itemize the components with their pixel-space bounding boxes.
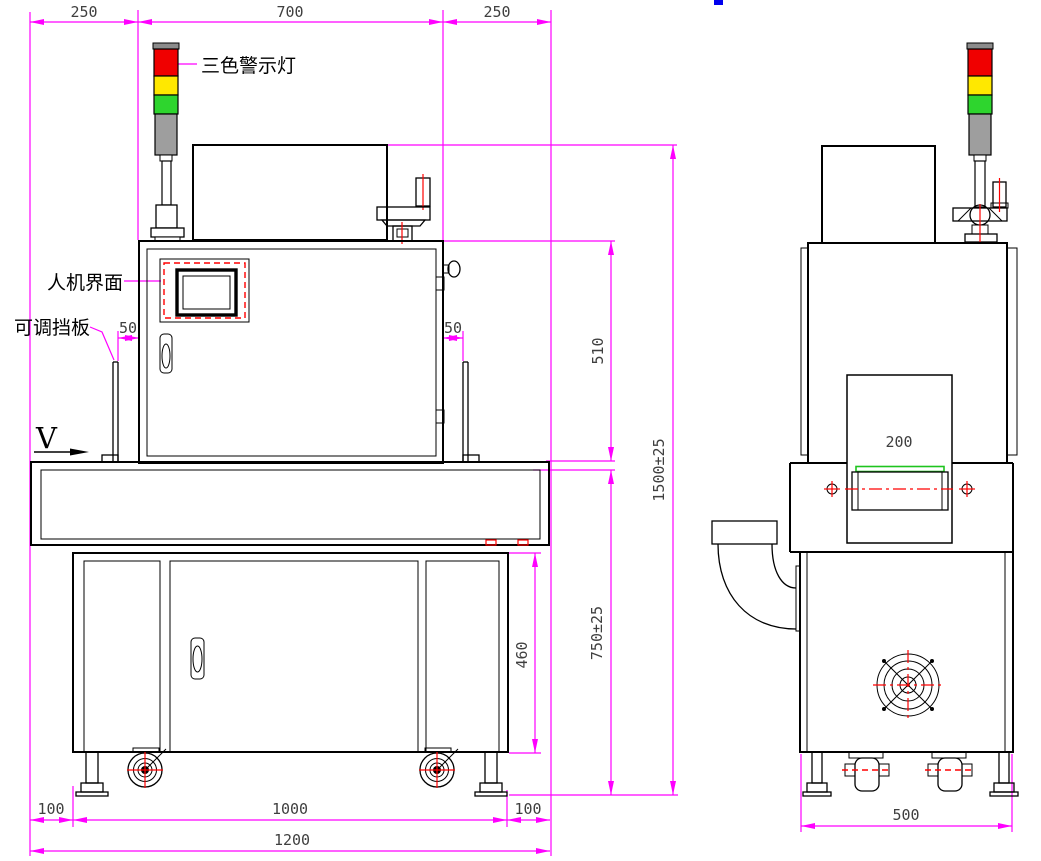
- adjustable-baffle-left: [102, 362, 118, 462]
- dim-total-depth: 500: [892, 806, 919, 824]
- label-view-marker: V: [35, 421, 58, 455]
- leveling-foot-front-right: [475, 752, 507, 796]
- leveling-foot-side-right: [990, 752, 1018, 796]
- base-door: [170, 561, 418, 752]
- crosshair-left-icon: [824, 481, 840, 497]
- upper-door-handle-icon: [160, 334, 172, 373]
- side-top-housing: [822, 146, 935, 243]
- adjustable-baffle-right: [463, 362, 479, 462]
- tower-light-side-icon: [953, 43, 1008, 243]
- label-adjustable-baffle: 可调挡板: [14, 317, 90, 339]
- caster-side-left: [842, 752, 892, 791]
- upper-rear-housing: [193, 145, 387, 240]
- front-view: [31, 43, 549, 796]
- handwheel-icon: [377, 174, 430, 244]
- dim-cabinet-height: 460: [513, 641, 531, 668]
- tower-light-front-icon: [151, 43, 184, 241]
- machine-dimension-drawing: 250 700 250 50 50 510 750±25 1500±25 460…: [0, 0, 1041, 861]
- table-band-inner: [41, 470, 540, 539]
- leveling-foot-front-left: [76, 752, 108, 796]
- hmi-screen: [160, 259, 249, 322]
- fan-grille-icon: [873, 650, 943, 720]
- caster-front-right: [419, 748, 458, 788]
- label-tower-light: 三色警示灯: [201, 55, 296, 77]
- baffle-leader: [90, 327, 114, 360]
- side-flange-left: [801, 248, 808, 455]
- base-cabinet: [73, 553, 508, 752]
- leveling-foot-side-left: [803, 752, 831, 796]
- base-panel-left: [84, 561, 160, 752]
- engineering-drawing-canvas: 250 700 250 50 50 510 750±25 1500±25 460…: [0, 0, 1041, 861]
- dim-baffle-right: 50: [444, 319, 462, 337]
- blue-artifact: [714, 0, 723, 5]
- exhaust-duct: [712, 521, 800, 631]
- side-knob-icon: [443, 261, 460, 277]
- label-hmi: 人机界面: [47, 272, 123, 294]
- caster-side-right: [925, 752, 975, 791]
- dim-belt-width: 200: [885, 433, 912, 451]
- dim-foot-left: 100: [37, 800, 64, 818]
- dim-table-height: 750±25: [588, 606, 606, 660]
- conveyor-tunnel: [845, 375, 953, 543]
- dim-top-left: 250: [70, 3, 97, 21]
- dim-total-width: 1200: [274, 831, 310, 849]
- crosshair-right-icon: [959, 481, 975, 497]
- side-lower-body: [800, 552, 1013, 752]
- dim-total-height: 1500±25: [650, 438, 668, 501]
- dim-baffle-left: 50: [119, 319, 137, 337]
- table-band: [31, 462, 549, 545]
- dim-foot-right: 100: [514, 800, 541, 818]
- side-view: [712, 43, 1018, 796]
- base-panel-right: [426, 561, 499, 752]
- dim-upper-height: 510: [589, 337, 607, 364]
- side-flange-right: [1007, 248, 1017, 455]
- dim-feet-span: 1000: [272, 800, 308, 818]
- base-door-handle-icon: [191, 638, 204, 679]
- dim-top-right: 250: [483, 3, 510, 21]
- dim-top-width: 700: [276, 3, 303, 21]
- caster-front-left: [127, 748, 166, 788]
